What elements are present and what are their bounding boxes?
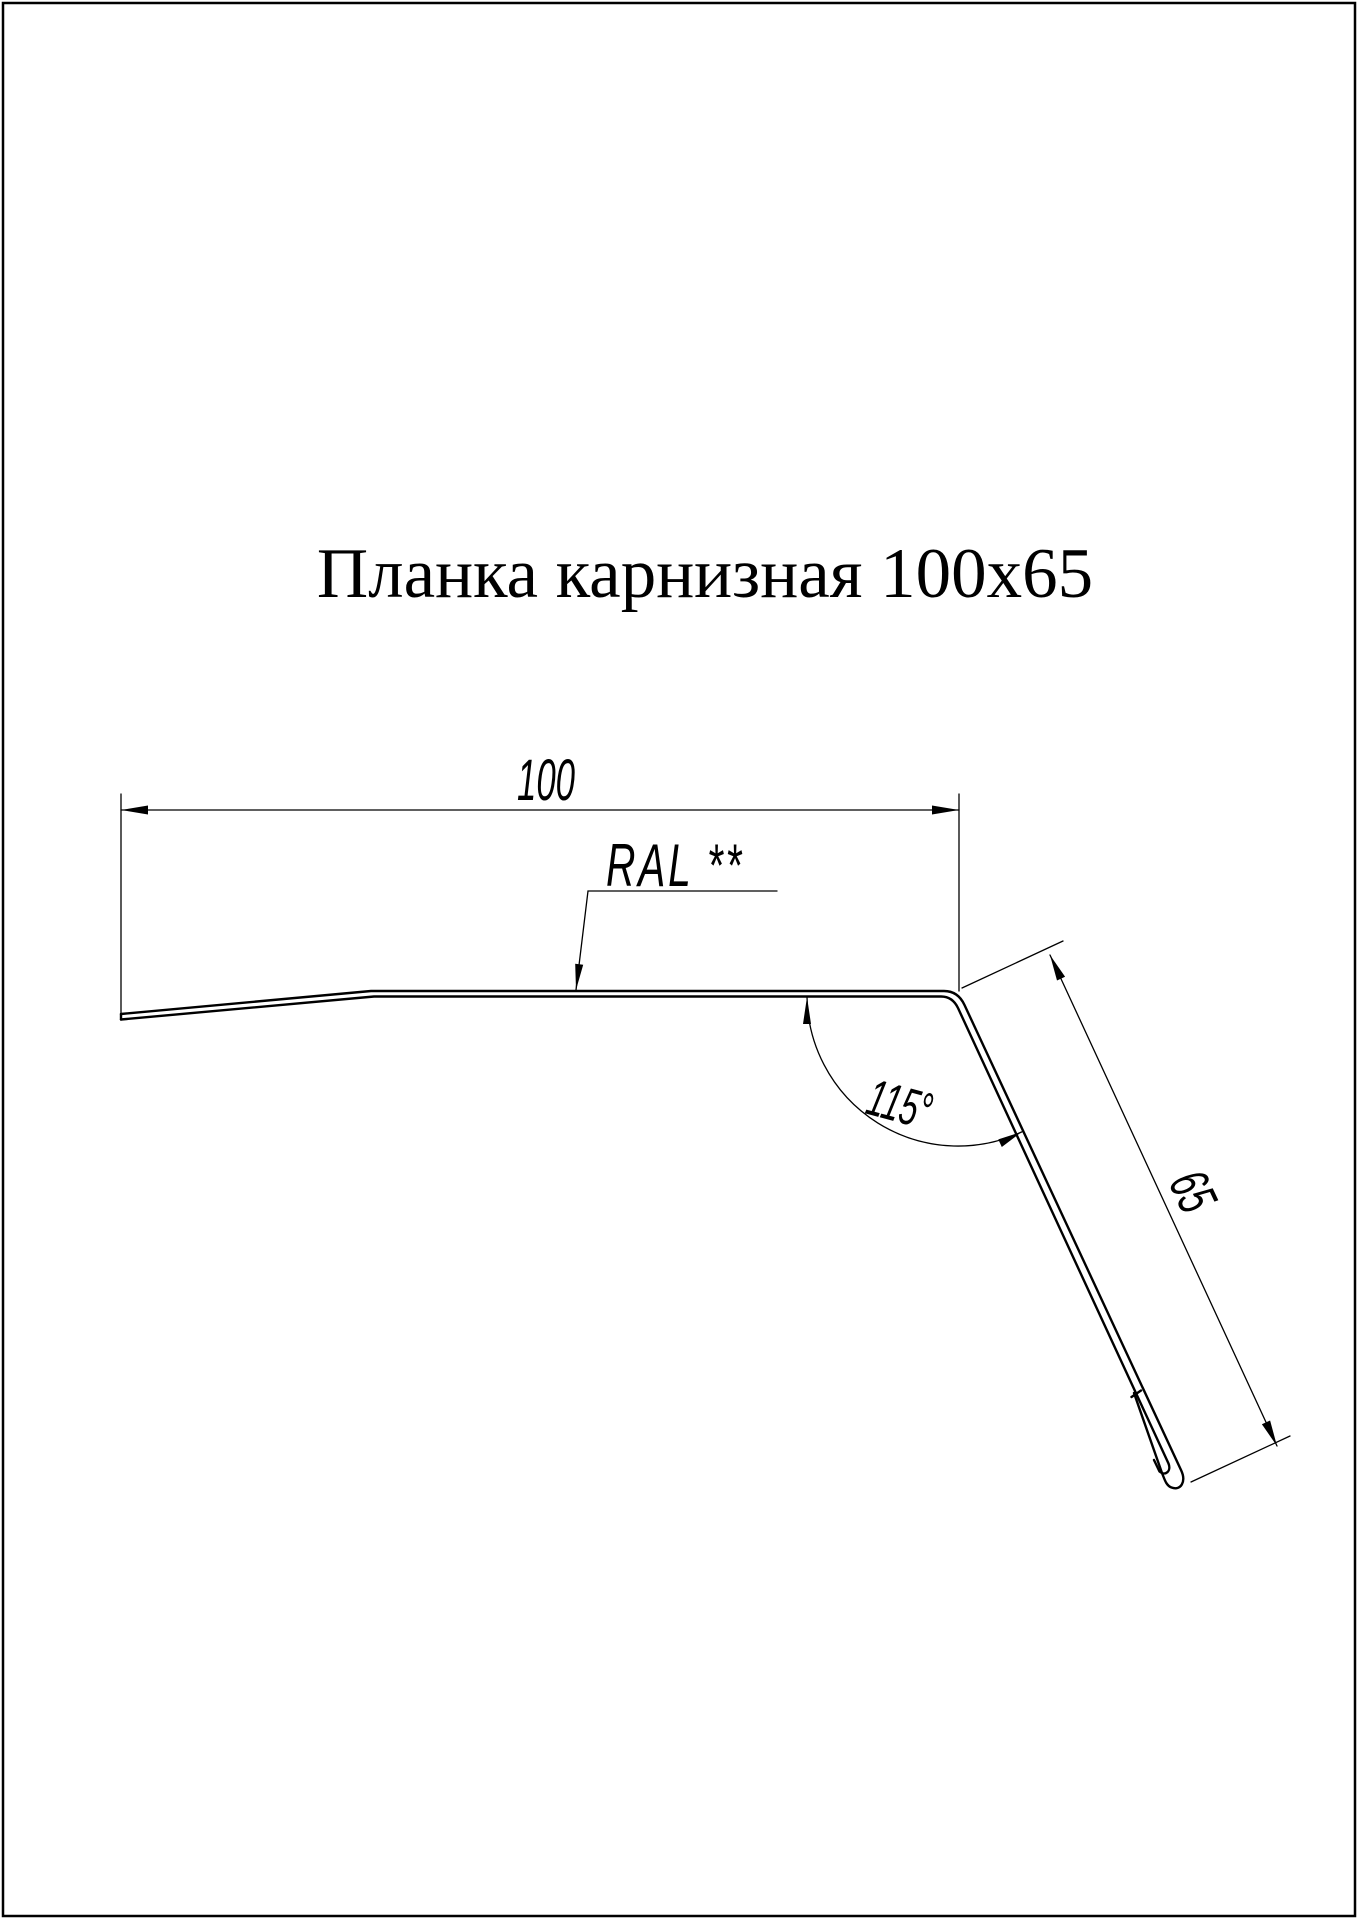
flange-arrow-top <box>1050 955 1065 981</box>
width-arrow-right <box>932 806 959 815</box>
flange-arrow-bottom <box>1262 1421 1277 1447</box>
profile-outer-line <box>121 991 1183 1488</box>
angle-arrow-top <box>803 997 811 1024</box>
flange-dimension-label: 65 <box>1157 1161 1229 1222</box>
dimension-angle: 115° <box>803 997 1022 1147</box>
drawing-canvas: Планка карнизная 100x65 100 <box>0 0 1359 1920</box>
width-dimension-label: 100 <box>517 749 575 813</box>
profile-section <box>121 991 1183 1488</box>
coating-label: RAL ** <box>606 832 744 899</box>
width-arrow-left <box>121 806 148 815</box>
page-border <box>3 3 1355 1916</box>
drawing-title: Планка карнизная 100x65 <box>317 535 1093 613</box>
leader-line <box>576 891 777 990</box>
leader-arrow <box>575 964 583 990</box>
dimension-width: 100 <box>121 749 959 1014</box>
profile-inner-line <box>121 997 1169 1474</box>
angle-dimension-label: 115° <box>861 1069 938 1141</box>
dimension-flange: 65 <box>962 941 1290 1482</box>
flange-extension-line-top <box>962 941 1063 988</box>
coating-leader: RAL ** <box>575 832 777 990</box>
drawing-sheet: Планка карнизная 100x65 100 <box>0 0 1359 1920</box>
